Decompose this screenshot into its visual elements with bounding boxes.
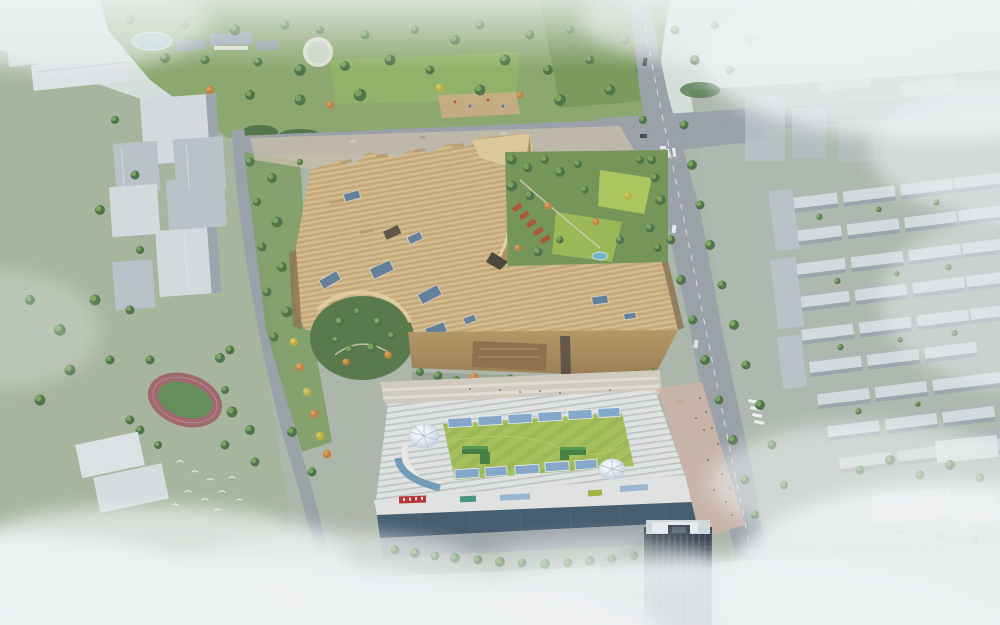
aerial-rendering: Aerial rendering of a cultural mall comp… [0,0,1000,625]
atmospheric-haze [0,0,1000,625]
aerial-rendering-stage: Aerial rendering of a cultural mall comp… [0,0,1000,625]
fog-layer [0,0,1000,625]
